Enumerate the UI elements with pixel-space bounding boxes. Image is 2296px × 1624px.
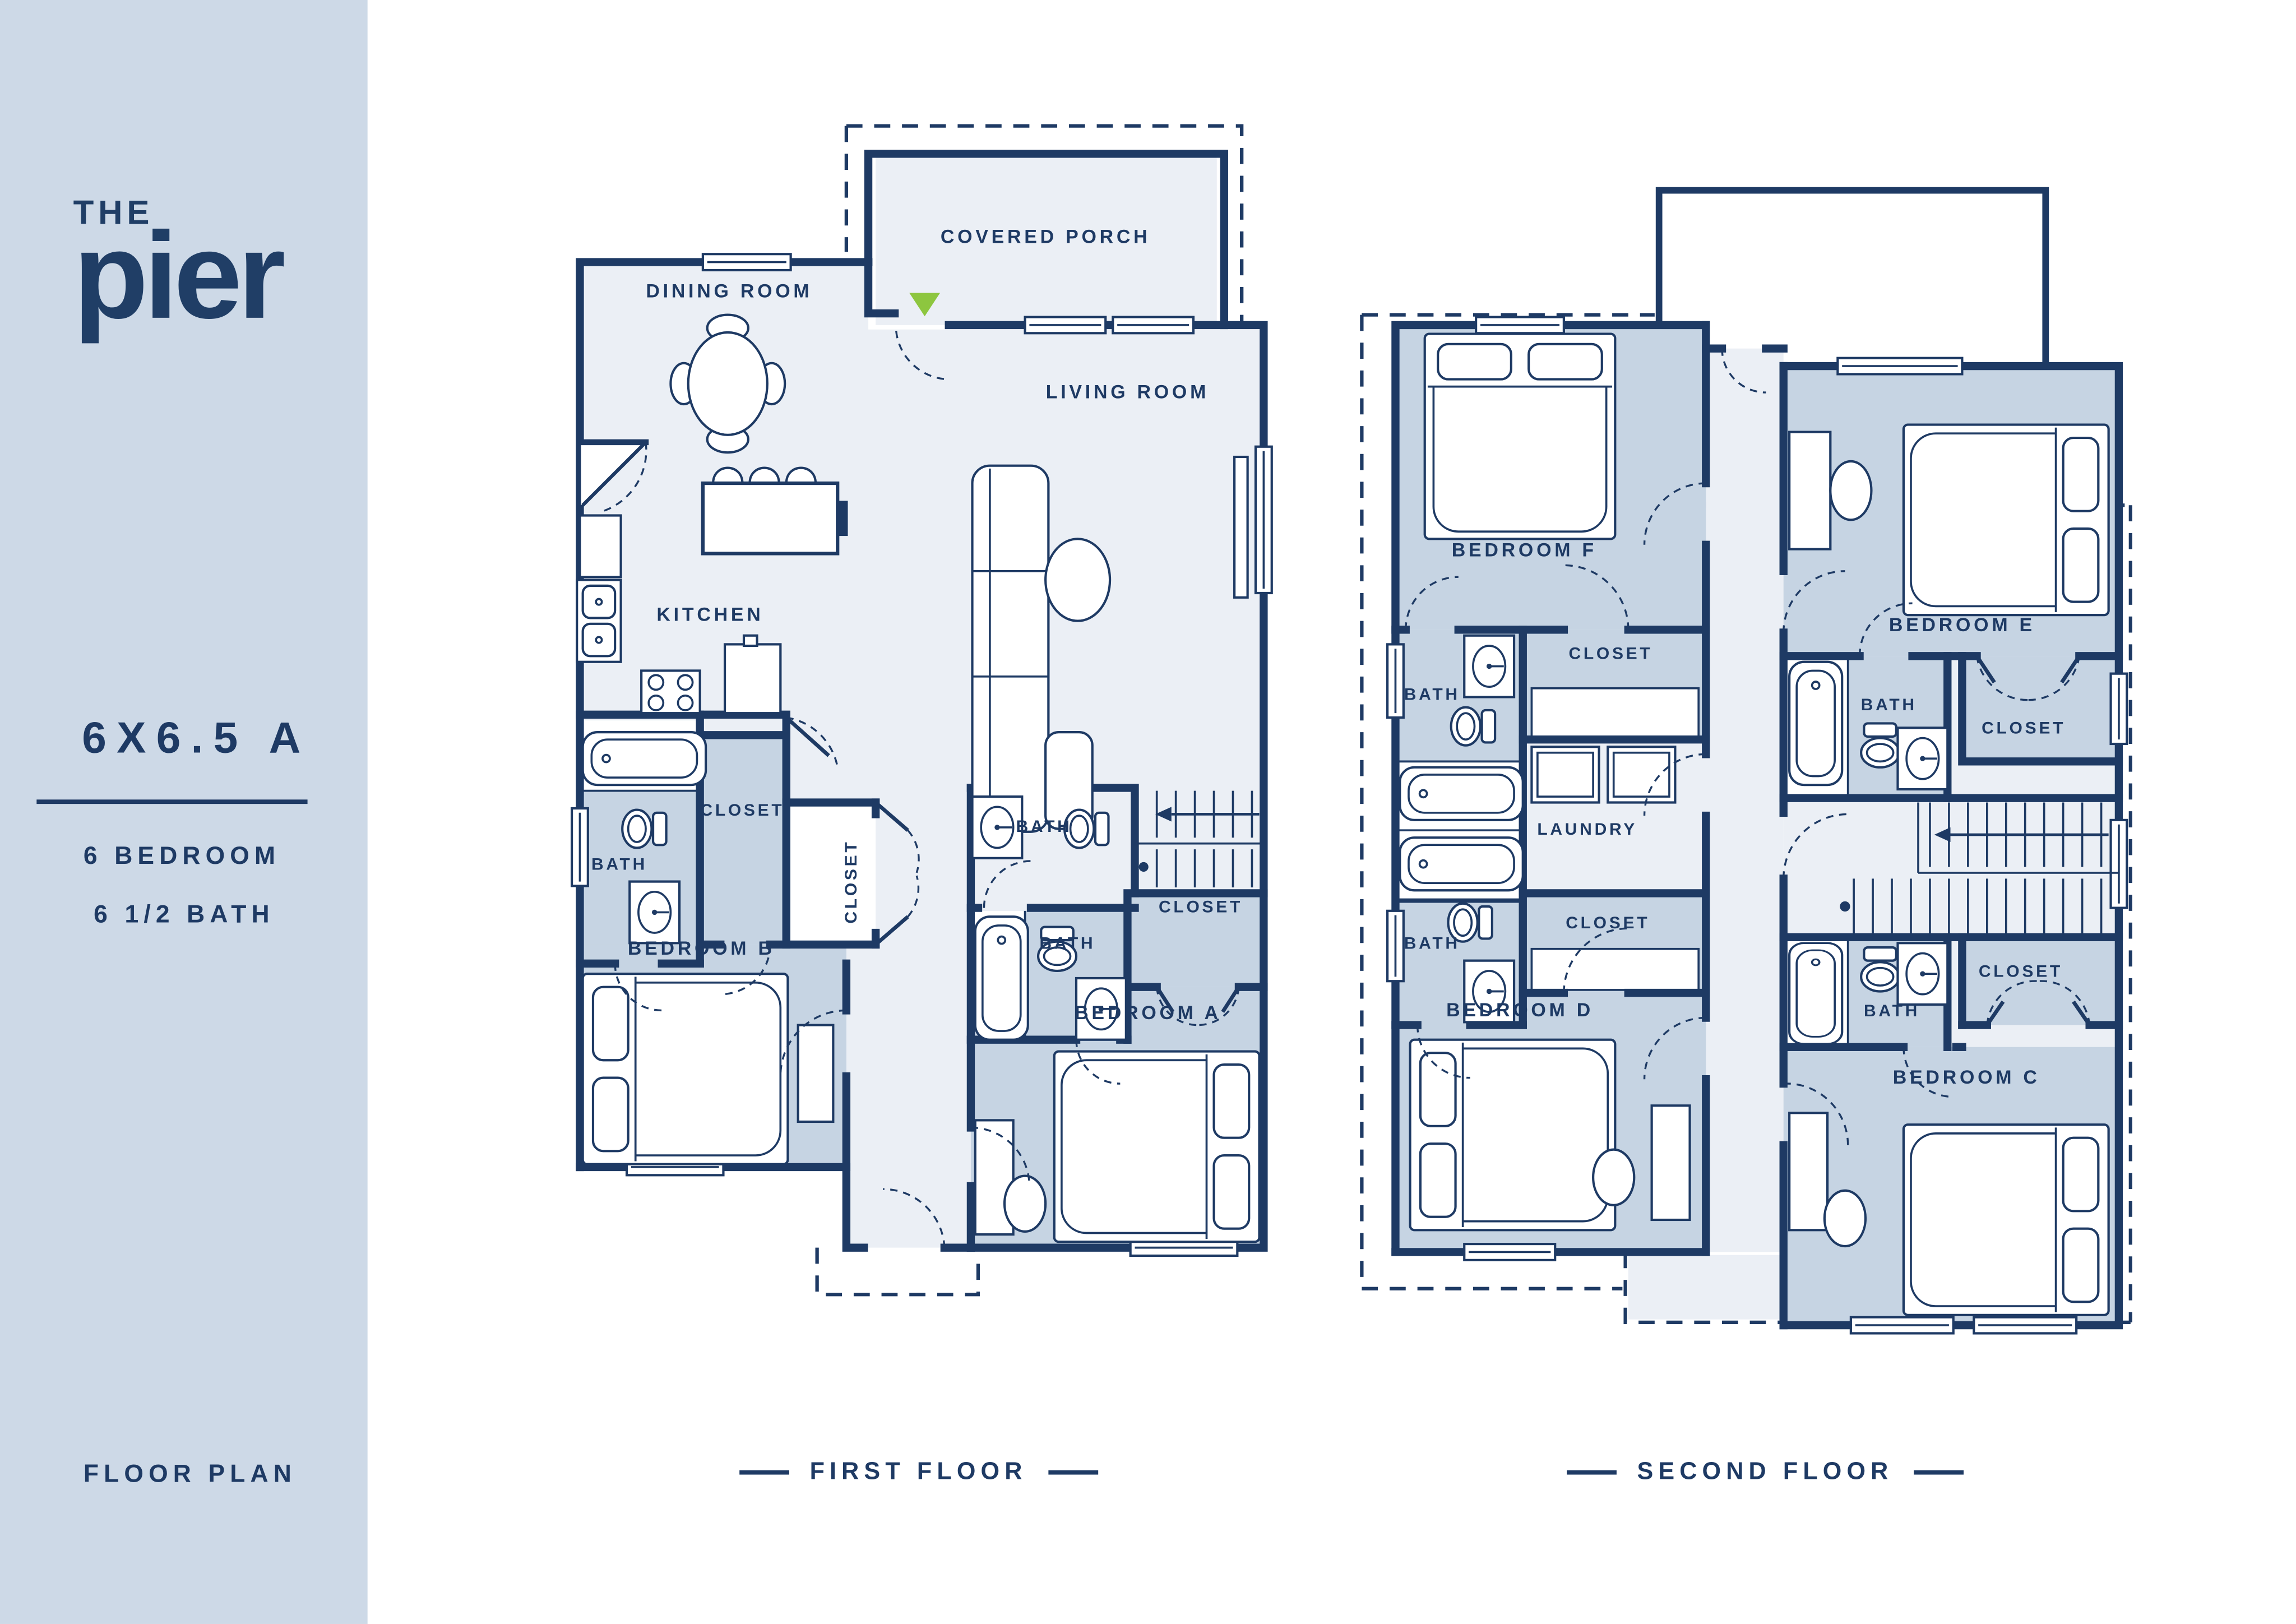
- chair-icon: [1830, 461, 1871, 520]
- kitchen-label: KITCHEN: [656, 604, 763, 626]
- page-viewport: THE pier 6X6.5 A 6 BEDROOM 6 1/2 BATH FL…: [0, 0, 2296, 1624]
- closet-b-floor: [700, 735, 786, 945]
- first-floor-plan: COVERED PORCH DINING ROOM LIVING ROOM KI…: [557, 114, 1289, 1308]
- kitchen-sink-icon: [577, 580, 621, 661]
- title-rule-right: [1914, 1470, 1964, 1474]
- chair-icon: [1004, 1176, 1045, 1232]
- first-floor-title-text: FIRST FLOOR: [810, 1459, 1027, 1487]
- sidebar: THE pier 6X6.5 A 6 BEDROOM 6 1/2 BATH FL…: [0, 0, 368, 1624]
- plan-name: 6X6.5 A: [82, 715, 367, 765]
- brand-logo-pier: pier: [73, 233, 281, 318]
- bedroom-b-bed: [583, 974, 788, 1164]
- bedroom-c-bed: [1904, 1125, 2109, 1315]
- window-icon: [572, 808, 588, 886]
- bath-c-label: BATH: [1864, 1002, 1920, 1020]
- closet-d-shelf: [1531, 949, 1698, 990]
- window-icon: [1476, 317, 1564, 334]
- closet-c-label: CLOSET: [1979, 962, 2063, 980]
- bedroom-e-label: BEDROOM E: [1889, 614, 2035, 636]
- bedroom-a-bed: [1054, 1052, 1260, 1242]
- bath-f-label: BATH: [1404, 686, 1460, 704]
- window-icon: [1025, 317, 1106, 334]
- window-icon: [1387, 644, 1404, 718]
- bedroom-d-bed: [1410, 1040, 1615, 1230]
- console-icon: [1234, 457, 1248, 598]
- window-icon: [1256, 447, 1272, 593]
- dining-room-label: DINING ROOM: [646, 280, 812, 302]
- desk-icon: [1789, 1113, 1827, 1230]
- spec-bedrooms: 6 BEDROOM: [84, 841, 368, 871]
- window-icon: [1464, 1244, 1555, 1260]
- island-icon: [703, 483, 837, 553]
- closet-b-label: CLOSET: [700, 801, 784, 820]
- brand-logo: THE pier: [73, 193, 281, 318]
- hall-closet-label: CLOSET: [842, 840, 860, 924]
- bedroom-f-label: BEDROOM F: [1452, 540, 1597, 561]
- bedroom-e-bed: [1904, 425, 2109, 616]
- spec-baths: 6 1/2 BATH: [94, 900, 367, 929]
- bedroom-a-label: BEDROOM A: [1075, 1002, 1221, 1024]
- bedroom-c-label: BEDROOM C: [1893, 1067, 2040, 1088]
- entry-step-dashed-outline: [817, 1248, 978, 1295]
- window-icon: [1837, 358, 1962, 374]
- second-floor-plan: BEDROOM F BATH CLOSET LAUNDRY BATH CLOSE…: [1347, 175, 2145, 1347]
- closet-f-label: CLOSET: [1568, 645, 1652, 663]
- laundry-label: LAUNDRY: [1537, 820, 1637, 839]
- closet-f-shelf: [1531, 688, 1698, 737]
- fridge-icon: [580, 516, 621, 577]
- desk-icon: [1652, 1105, 1690, 1220]
- title-rule-left: [1567, 1470, 1617, 1474]
- corridor-floor: [1706, 349, 1783, 1252]
- side-table-icon: [1045, 539, 1110, 621]
- bath-d-label: BATH: [1404, 934, 1460, 953]
- window-icon: [703, 254, 791, 270]
- covered-porch-label: COVERED PORCH: [941, 226, 1151, 248]
- title-rule-right: [1048, 1470, 1098, 1474]
- island-tab: [837, 501, 848, 536]
- bath-a-label: BATH: [1039, 934, 1095, 953]
- dresser-icon: [798, 1025, 834, 1122]
- closet-d-label: CLOSET: [1566, 914, 1650, 932]
- chair-icon: [1825, 1191, 1865, 1246]
- living-room-label: LIVING ROOM: [1046, 382, 1209, 403]
- plan-divider: [36, 799, 307, 803]
- stove-icon: [641, 670, 700, 713]
- dishwasher-icon: [725, 644, 780, 713]
- sheet-type-label: FLOOR PLAN: [84, 1460, 297, 1489]
- window-icon: [2111, 674, 2127, 744]
- window-icon: [1387, 911, 1404, 981]
- title-rule-left: [739, 1470, 789, 1474]
- bedroom-f-bed: [1425, 334, 1615, 539]
- closet-e-label: CLOSET: [1982, 719, 2066, 738]
- dresser-icon: [1789, 432, 1830, 549]
- hall-bath-label: BATH: [1016, 817, 1072, 836]
- closet-a-label: CLOSET: [1159, 897, 1243, 916]
- second-floor-title-text: SECOND FLOOR: [1637, 1459, 1893, 1487]
- bath-b-label: BATH: [591, 855, 647, 874]
- window-icon: [2111, 820, 2127, 908]
- chair-icon: [1593, 1150, 1634, 1205]
- plan-info: 6X6.5 A 6 BEDROOM 6 1/2 BATH: [0, 715, 368, 929]
- bath-e-label: BATH: [1861, 696, 1917, 714]
- floorplan-sheet: THE pier 6X6.5 A 6 BEDROOM 6 1/2 BATH FL…: [0, 0, 2296, 1624]
- landing-floor: [1628, 1255, 1806, 1320]
- window-icon: [1851, 1317, 1954, 1334]
- bedroom-d-label: BEDROOM D: [1446, 1000, 1594, 1021]
- hall-closet-floor: [786, 803, 876, 945]
- first-floor-title: FIRST FLOOR: [739, 1459, 1098, 1487]
- second-floor-title: SECOND FLOOR: [1567, 1459, 1964, 1487]
- bedroom-b-label: BEDROOM B: [628, 938, 775, 959]
- window-icon: [1113, 317, 1193, 334]
- window-icon: [1974, 1317, 2076, 1334]
- sofa-icon: [973, 466, 1049, 832]
